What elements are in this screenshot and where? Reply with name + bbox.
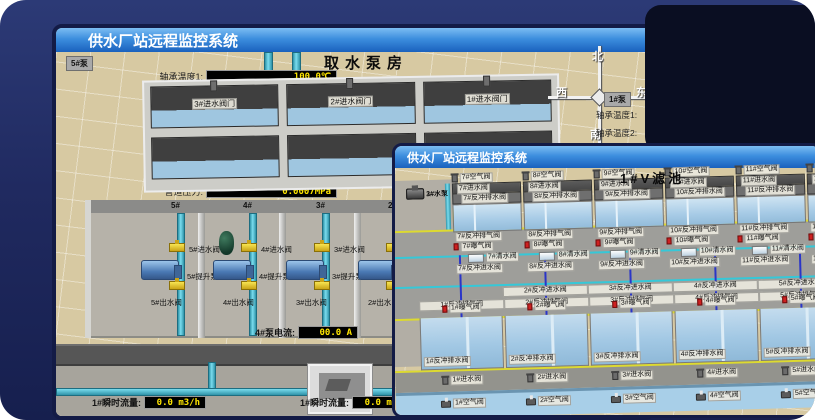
- inlet-valve-icon[interactable]: [697, 370, 703, 378]
- flow-group: 1#瞬时流量: 0.0 m3/h: [92, 396, 300, 409]
- inlet-valve-icon[interactable]: [782, 367, 788, 375]
- inlet-valve-row: 1#进水阀: [421, 368, 505, 392]
- air-valve-row: 2#空气阀: [507, 388, 591, 414]
- scene-title-filter: 1#V滤池: [620, 168, 684, 187]
- pump-current-label: 4#泵电流:: [255, 326, 295, 339]
- filter-cell: 1#反冲排水阀 1#进水阀 1#空气阀: [420, 316, 506, 418]
- intake-valve-icon[interactable]: [347, 78, 354, 89]
- outlet-valve-icon[interactable]: [169, 281, 185, 290]
- intake-channel: 2#进水阀门: [286, 82, 415, 126]
- air-valve-row: 4#空气阀: [677, 383, 761, 409]
- backwash-drain-valve-label: 4#反冲排水阀: [679, 349, 726, 360]
- inlet-valve-label: 2#进水阀: [535, 372, 568, 383]
- flow-label: 1#瞬时流量:: [92, 396, 141, 409]
- inlet-valve-icon[interactable]: [314, 243, 330, 252]
- intake-valve-icon[interactable]: [210, 80, 217, 91]
- pump-1-badge: 1#泵: [604, 92, 631, 107]
- air-valve-icon[interactable]: [781, 391, 791, 398]
- outlet-valve-icon[interactable]: [314, 281, 330, 290]
- bay-number-label: 3#: [316, 201, 325, 210]
- air-valve-icon[interactable]: [611, 395, 621, 402]
- inlet-valve-row: 3#进水阀: [591, 363, 675, 387]
- lift-pump-icon[interactable]: [141, 260, 179, 280]
- lift-pump-icon[interactable]: [358, 260, 396, 280]
- bottom-filter-cells: 1#反冲排水阀 1#进水阀 1#空气阀: [392, 157, 815, 416]
- inlet-valve-label: 1#进水阀: [450, 375, 483, 386]
- telemetry-label: 轴承温度2:: [596, 127, 637, 139]
- backwash-drain-valve-label: 1#反冲排水阀: [424, 356, 471, 367]
- multifunction-tank-icon[interactable]: [219, 231, 234, 255]
- filter-pool-water: 2#反冲排水阀: [505, 314, 589, 368]
- intake-valve-label: 2#进水阀门: [328, 96, 373, 108]
- lift-pump-icon[interactable]: [286, 260, 324, 280]
- filter-pool-water: 3#反冲排水阀: [590, 311, 674, 365]
- outlet-valve-label: 5#出水阀: [151, 297, 182, 308]
- intake-valve-label: 3#进水阀门: [192, 98, 237, 110]
- flow-label: 1#瞬时流量:: [300, 396, 349, 409]
- filter-cell: 3#反冲排水阀 3#进水阀 3#空气阀: [590, 311, 676, 413]
- filter-scene-tilt-group: 1#水泵 2#水泵 3#水泵 1#风机: [392, 157, 815, 416]
- air-valve-row: 1#空气阀: [422, 390, 506, 416]
- intake-valve-icon[interactable]: [483, 76, 490, 87]
- air-valve-icon[interactable]: [526, 398, 536, 405]
- pump-bays: 5# 5#进水阀 5#提升泵 5#出水阀 4#: [91, 200, 400, 338]
- air-valve-icon[interactable]: [441, 400, 451, 407]
- air-valve-label: 3#空气阀: [623, 393, 656, 404]
- outlet-valve-icon[interactable]: [241, 281, 257, 290]
- pump-bay: 4# 4#进水阀 4#提升泵 4#出水阀: [213, 213, 285, 338]
- air-valve-label: 2#空气阀: [538, 395, 571, 406]
- air-valve-row: 5#空气阀: [762, 381, 815, 407]
- inlet-valve-row: 5#进水阀: [761, 359, 815, 383]
- inlet-valve-icon[interactable]: [241, 243, 257, 252]
- compass-north-label: 北: [592, 48, 603, 64]
- flow-value-display: 0.0 m3/h: [144, 396, 206, 409]
- filter-pool-water: 4#反冲排水阀: [675, 309, 759, 363]
- inlet-valve-label: 3#进水阀: [620, 370, 653, 381]
- intake-valve-label-wrap: 1#进水阀门: [465, 88, 510, 107]
- filter-pool-water: 1#反冲排水阀: [420, 316, 504, 370]
- filter-cell: 4#反冲排水阀 4#进水阀 4#空气阀: [675, 309, 761, 411]
- back-window-title: 供水厂站远程监控系统: [88, 30, 238, 51]
- filter-cell: 2#反冲排水阀 2#进水阀 2#空气阀: [505, 314, 591, 416]
- air-valve-label: 5#空气阀: [793, 388, 815, 399]
- intake-valve-label: 1#进水阀门: [465, 93, 510, 105]
- air-valve-icon[interactable]: [696, 393, 706, 400]
- intake-channel: [151, 135, 280, 179]
- background-window-panel: [645, 5, 815, 153]
- window-v-filter-pool: 供水厂站远程监控系统 1#V滤池 1#水泵: [392, 143, 815, 418]
- backwash-drain-valve-label: 3#反冲排水阀: [594, 351, 641, 362]
- pump-current-display: 00.0 A: [298, 326, 358, 339]
- outlet-valve-label: 4#出水阀: [223, 297, 254, 308]
- inlet-valve-icon[interactable]: [442, 377, 448, 385]
- outlet-valve-label: 3#出水阀: [296, 297, 327, 308]
- bay-number-label: 4#: [243, 201, 252, 210]
- desktop-background: 供水厂站远程监控系统 取水泵房 5#泵 轴承温度1: 100.0℃ 轴承温度2:…: [0, 0, 815, 420]
- inlet-valve-icon[interactable]: [527, 374, 533, 382]
- v-filter-scene: 1#V滤池 1#水泵 2#水泵: [395, 168, 815, 415]
- intake-channel: 1#进水阀门: [423, 80, 552, 124]
- intake-valve-label-wrap: 2#进水阀门: [328, 91, 373, 110]
- intake-channel: 3#进水阀门: [150, 84, 279, 128]
- lift-pump-icon[interactable]: [213, 260, 251, 280]
- inlet-valve-icon[interactable]: [169, 243, 185, 252]
- screenshot-root: 供水厂站远程监控系统 取水泵房 5#泵 轴承温度1: 100.0℃ 轴承温度2:…: [0, 0, 815, 420]
- pump-current-group: 4#泵电流: 00.0 A: [255, 326, 358, 339]
- pump-bay: 3# 3#进水阀 3#提升泵 3#出水阀: [286, 213, 358, 338]
- air-valve-label: 4#空气阀: [708, 390, 741, 401]
- pump-bay: 5# 5#进水阀 5#提升泵 5#出水阀: [141, 213, 213, 338]
- compass-west-label: 西: [556, 84, 567, 100]
- pump-5-badge: 5#泵: [66, 56, 93, 71]
- intake-row-upper: 3#进水阀门 2#进水阀门 1#进水阀门: [150, 80, 552, 129]
- intake-valve-label-wrap: 3#进水阀门: [192, 93, 237, 112]
- pump-hall: 5# 5#进水阀 5#提升泵 5#出水阀 4#: [85, 200, 400, 338]
- backwash-drain-valve-label: 5#反冲排水阀: [764, 347, 811, 358]
- inlet-valve-label: 4#进水阀: [705, 368, 738, 379]
- filter-pool-water: 5#反冲排水阀: [759, 307, 815, 361]
- pump-1-telemetry-labels: 轴承温度1:轴承温度2:: [596, 109, 637, 139]
- air-valve-label: 1#空气阀: [453, 398, 486, 409]
- bay-number-label: 5#: [171, 201, 180, 210]
- inlet-valve-row: 2#进水阀: [506, 366, 590, 390]
- telemetry-label: 轴承温度1:: [596, 109, 637, 121]
- front-window-title: 供水厂站远程监控系统: [407, 149, 527, 166]
- inlet-valve-row: 4#进水阀: [676, 361, 760, 385]
- backwash-drain-valve-label: 2#反冲排水阀: [509, 354, 556, 365]
- inlet-valve-label: 5#进水阀: [790, 365, 815, 376]
- filter-cell: 5#反冲排水阀 5#进水阀 5#空气阀: [759, 307, 815, 409]
- air-valve-row: 3#空气阀: [592, 385, 676, 411]
- inlet-valve-icon[interactable]: [612, 372, 618, 380]
